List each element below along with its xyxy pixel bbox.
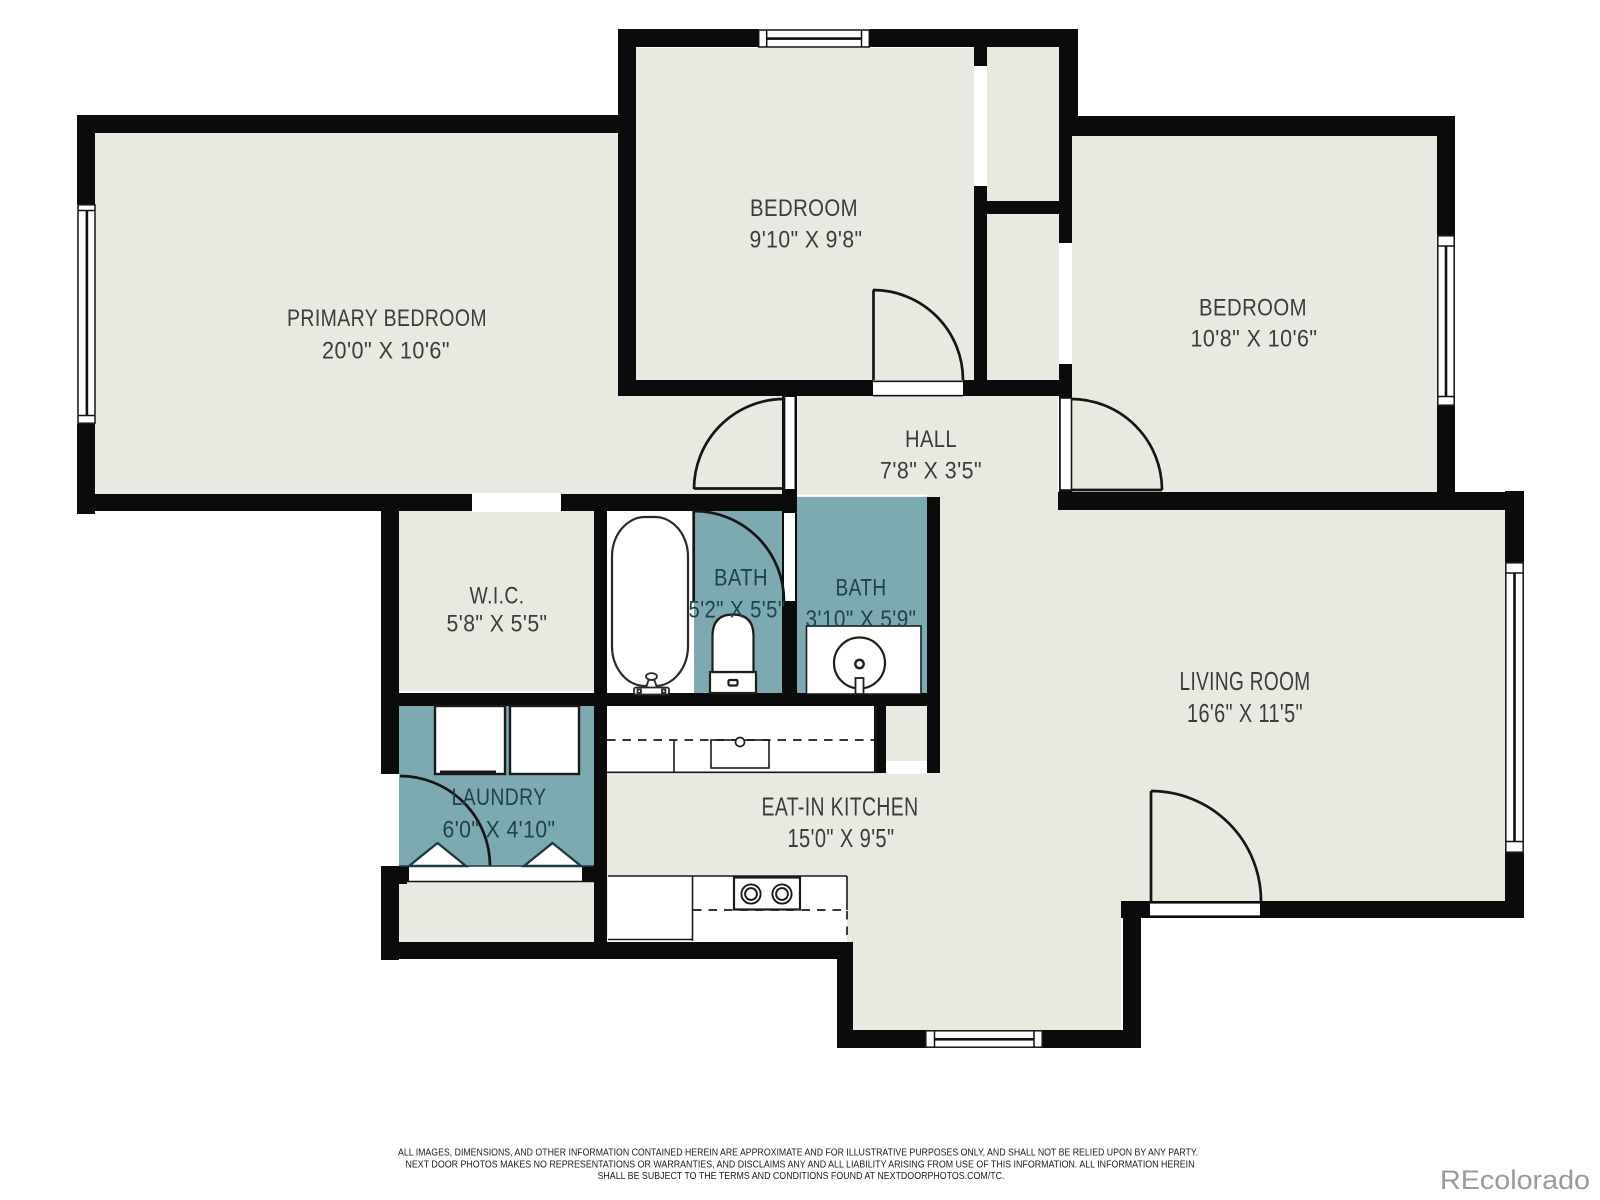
- svg-text:20'0" X 10'6": 20'0" X 10'6": [322, 338, 450, 365]
- svg-text:BEDROOM: BEDROOM: [750, 195, 858, 222]
- svg-text:LIVING ROOM: LIVING ROOM: [1180, 666, 1311, 696]
- svg-text:5'8" X 5'5": 5'8" X 5'5": [447, 611, 548, 638]
- svg-text:REcolorado: REcolorado: [1440, 1165, 1590, 1195]
- svg-text:5'2" X 5'5": 5'2" X 5'5": [689, 597, 786, 624]
- svg-text:ALL IMAGES, DIMENSIONS, AND OT: ALL IMAGES, DIMENSIONS, AND OTHER INFORM…: [398, 1148, 1198, 1159]
- svg-text:PRIMARY BEDROOM: PRIMARY BEDROOM: [287, 305, 487, 332]
- svg-text:BATH: BATH: [714, 565, 768, 592]
- svg-text:15'0" X 9'5": 15'0" X 9'5": [788, 823, 895, 853]
- svg-text:6'0" X 4'10": 6'0" X 4'10": [443, 817, 556, 844]
- svg-text:9'10" X 9'8": 9'10" X 9'8": [750, 227, 863, 254]
- svg-text:BEDROOM: BEDROOM: [1199, 295, 1307, 322]
- svg-text:LAUNDRY: LAUNDRY: [452, 784, 547, 811]
- svg-text:16'6" X 11'5": 16'6" X 11'5": [1187, 698, 1303, 728]
- svg-text:3'10" X 5'9": 3'10" X 5'9": [806, 606, 917, 633]
- svg-text:W.I.C.: W.I.C.: [470, 583, 525, 610]
- svg-text:EAT-IN KITCHEN: EAT-IN KITCHEN: [762, 792, 919, 822]
- svg-text:BATH: BATH: [836, 575, 887, 602]
- svg-text:SHALL BE SUBJECT TO THE TERMS: SHALL BE SUBJECT TO THE TERMS AND CONDIT…: [598, 1171, 1005, 1182]
- svg-text:HALL: HALL: [905, 426, 957, 453]
- svg-text:NEXT DOOR PHOTOS MAKES NO REPR: NEXT DOOR PHOTOS MAKES NO REPRESENTATION…: [406, 1160, 1195, 1171]
- svg-text:7'8" X 3'5": 7'8" X 3'5": [880, 458, 982, 485]
- svg-text:10'8" X 10'6": 10'8" X 10'6": [1191, 326, 1318, 353]
